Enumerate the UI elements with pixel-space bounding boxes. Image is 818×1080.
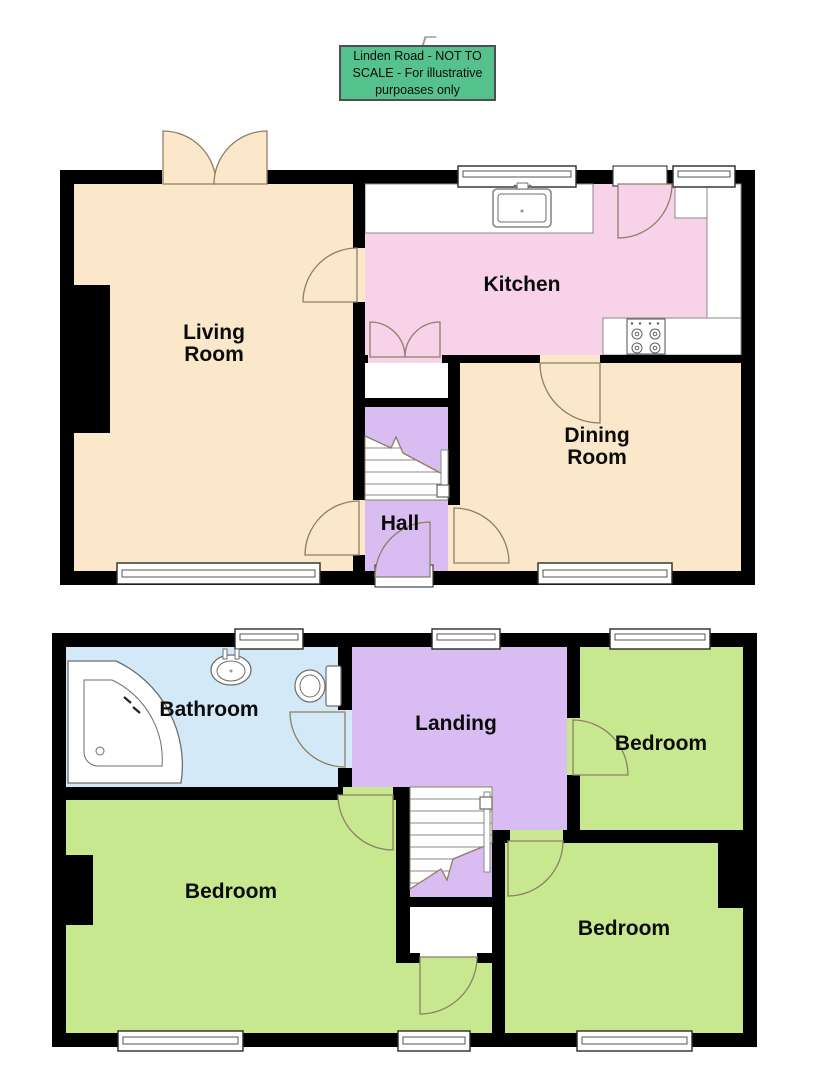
pantry-cupboard (365, 363, 448, 398)
landing-extension (492, 787, 567, 830)
window-icon (538, 563, 672, 584)
bedroom-main-area (66, 800, 396, 1033)
notice-box: Linden Road - NOT TO SCALE - For illustr… (339, 45, 496, 101)
understairs-cupboard (410, 907, 492, 953)
toilet-icon (295, 666, 341, 706)
bedroom-back-chimney-breast (718, 843, 757, 908)
window-icon (398, 1031, 470, 1051)
notice-line: SCALE - For illustrative (353, 65, 483, 82)
ground-floor-plan (60, 131, 755, 587)
bedroom-main-chimney-breast (52, 855, 93, 925)
notice-line: purpoases only (375, 82, 460, 99)
window-icon (673, 166, 735, 187)
hob-icon (627, 319, 665, 354)
first-floor-plan (52, 629, 757, 1051)
kitchen-sink-icon (493, 183, 551, 227)
french-door-right (214, 131, 267, 184)
floor-plan-drawing (0, 0, 818, 1080)
window-icon (235, 629, 303, 649)
window-icon (432, 629, 500, 649)
floor-plan-page: Linden Road - NOT TO SCALE - For illustr… (0, 0, 818, 1080)
living-room-area (74, 184, 353, 571)
window-icon (117, 563, 320, 584)
window-icon (118, 1031, 243, 1051)
landing-area (352, 647, 567, 787)
back-door-threshold (613, 166, 667, 186)
window-icon (577, 1031, 692, 1051)
french-door-left (163, 131, 216, 184)
notice-line: Linden Road - NOT TO (353, 48, 482, 65)
living-room-chimney-breast (66, 285, 110, 433)
window-icon (610, 629, 710, 649)
